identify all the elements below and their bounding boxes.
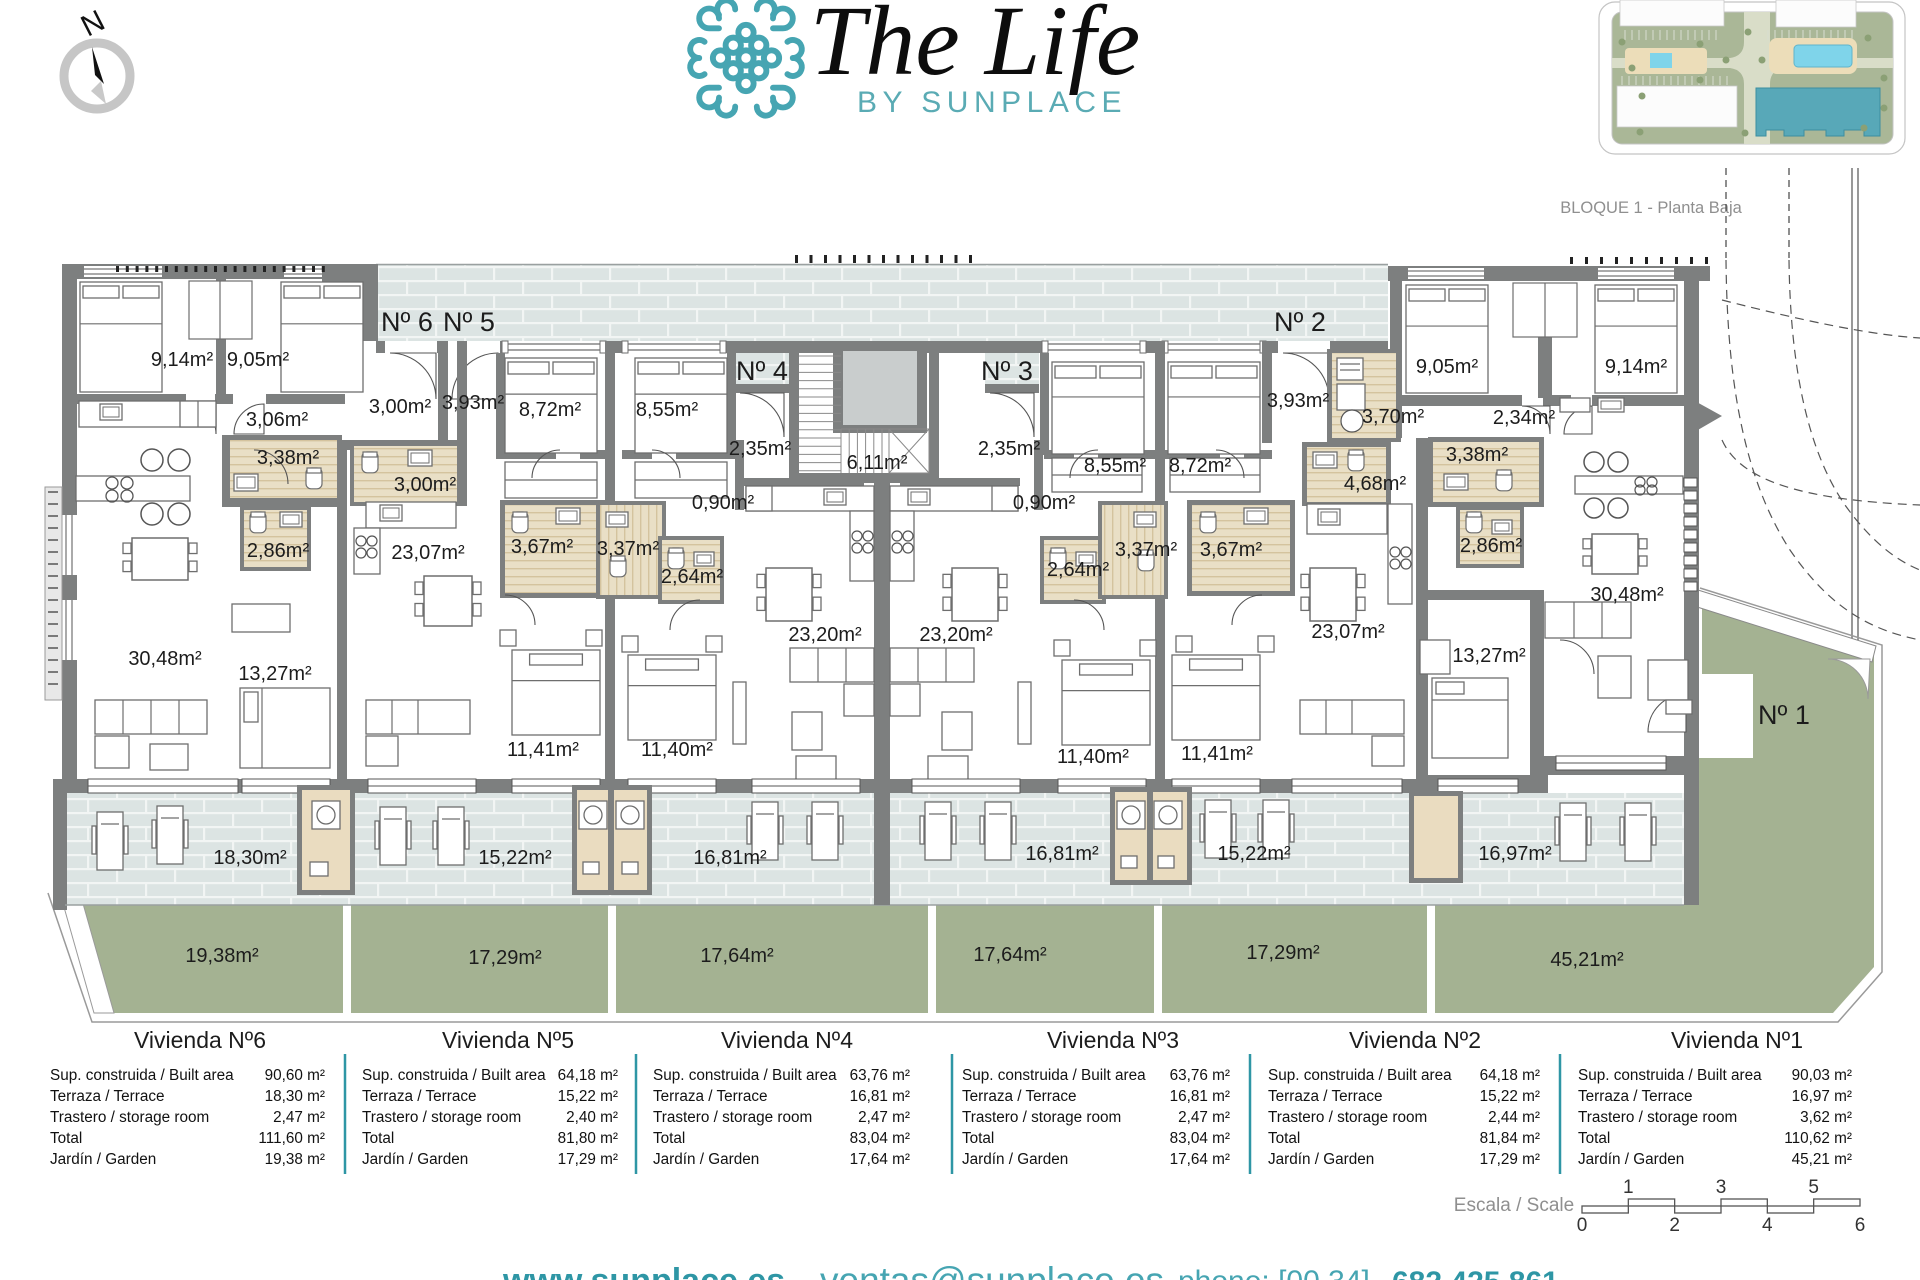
svg-text:Terraza / Terrace: Terraza / Terrace [962, 1088, 1077, 1105]
svg-text:2,47 m²: 2,47 m² [1178, 1109, 1230, 1126]
svg-text:17,29 m²: 17,29 m² [1480, 1151, 1540, 1168]
svg-text:1: 1 [1623, 1177, 1634, 1198]
svg-text:2: 2 [1669, 1215, 1680, 1236]
svg-text:13,27m²: 13,27m² [238, 663, 312, 685]
svg-text:Nº 1: Nº 1 [1758, 700, 1810, 730]
svg-text:6,11m²: 6,11m² [847, 452, 908, 474]
svg-text:30,48m²: 30,48m² [128, 648, 202, 670]
svg-text:Trastero / storage room: Trastero / storage room [1578, 1109, 1737, 1126]
svg-text:23,20m²: 23,20m² [788, 624, 862, 646]
svg-text:3,37m²: 3,37m² [1115, 539, 1178, 561]
svg-text:15,22m²: 15,22m² [478, 847, 552, 869]
svg-text:111,60 m²: 111,60 m² [258, 1130, 325, 1147]
svg-text:2,35m²: 2,35m² [729, 438, 792, 460]
svg-text:15,22m²: 15,22m² [1217, 843, 1291, 865]
svg-text:Sup. construida / Built area: Sup. construida / Built area [1578, 1067, 1762, 1084]
svg-text:Jardín / Garden: Jardín / Garden [1578, 1151, 1684, 1168]
svg-text:Terraza / Terrace: Terraza / Terrace [653, 1088, 768, 1105]
svg-text:Vivienda Nº5: Vivienda Nº5 [442, 1027, 574, 1053]
svg-text:BY SUNPLACE: BY SUNPLACE [857, 86, 1127, 119]
svg-text:4: 4 [1762, 1215, 1773, 1236]
svg-text:8,55m²: 8,55m² [1084, 455, 1147, 477]
svg-text:3,67m²: 3,67m² [1200, 539, 1263, 561]
svg-text:682 425 861: 682 425 861 [1392, 1266, 1559, 1280]
svg-text:BLOQUE 1 - Planta Baja: BLOQUE 1 - Planta Baja [1560, 199, 1742, 217]
svg-text:23,07m²: 23,07m² [1311, 621, 1385, 643]
svg-text:18,30 m²: 18,30 m² [265, 1088, 325, 1105]
svg-text:Sup. construida / Built area: Sup. construida / Built area [1268, 1067, 1452, 1084]
svg-text:Trastero / storage room: Trastero / storage room [362, 1109, 521, 1126]
svg-text:3,62 m²: 3,62 m² [1800, 1109, 1852, 1126]
svg-text:The Life: The Life [810, 0, 1141, 96]
svg-text:8,72m²: 8,72m² [519, 399, 582, 421]
svg-text:ventas@sunplace.es: ventas@sunplace.es [820, 1260, 1164, 1280]
svg-text:16,97m²: 16,97m² [1478, 843, 1552, 865]
svg-text:Vivienda Nº4: Vivienda Nº4 [721, 1027, 853, 1053]
svg-text:Total: Total [653, 1130, 685, 1147]
svg-text:0,90m²: 0,90m² [1013, 492, 1076, 514]
svg-text:Nº 4: Nº 4 [736, 356, 788, 386]
svg-text:Nº 6: Nº 6 [381, 307, 433, 337]
svg-text:17,29 m²: 17,29 m² [558, 1151, 618, 1168]
svg-text:17,64 m²: 17,64 m² [850, 1151, 910, 1168]
svg-text:45,21m²: 45,21m² [1550, 949, 1624, 971]
svg-text:23,07m²: 23,07m² [391, 542, 465, 564]
svg-text:2,44 m²: 2,44 m² [1488, 1109, 1540, 1126]
svg-text:90,60 m²: 90,60 m² [265, 1067, 325, 1084]
svg-text:16,81m²: 16,81m² [693, 847, 767, 869]
svg-text:3,38m²: 3,38m² [257, 447, 320, 469]
svg-text:3,00m²: 3,00m² [394, 474, 457, 496]
svg-text:9,05m²: 9,05m² [227, 349, 290, 371]
svg-text:17,64m²: 17,64m² [700, 945, 774, 967]
svg-text:11,40m²: 11,40m² [1057, 746, 1129, 768]
svg-text:63,76 m²: 63,76 m² [1170, 1067, 1230, 1084]
svg-text:Vivienda Nº2: Vivienda Nº2 [1349, 1027, 1481, 1053]
svg-text:16,97 m²: 16,97 m² [1792, 1088, 1852, 1105]
svg-text:16,81 m²: 16,81 m² [1170, 1088, 1230, 1105]
svg-text:9,14m²: 9,14m² [151, 349, 214, 371]
svg-text:3,67m²: 3,67m² [511, 536, 574, 558]
svg-text:Total: Total [1578, 1130, 1610, 1147]
svg-text:19,38 m²: 19,38 m² [265, 1151, 325, 1168]
svg-text:Jardín / Garden: Jardín / Garden [362, 1151, 468, 1168]
svg-text:30,48m²: 30,48m² [1590, 584, 1664, 606]
svg-text:64,18 m²: 64,18 m² [1480, 1067, 1540, 1084]
svg-text:Terraza / Terrace: Terraza / Terrace [1268, 1088, 1383, 1105]
svg-text:Trastero / storage room: Trastero / storage room [50, 1109, 209, 1126]
svg-text:Nº 5: Nº 5 [443, 307, 495, 337]
svg-text:Sup. construida / Built area: Sup. construida / Built area [362, 1067, 546, 1084]
svg-text:2,34m²: 2,34m² [1493, 407, 1556, 429]
svg-text:63,76 m²: 63,76 m² [850, 1067, 910, 1084]
svg-text:23,20m²: 23,20m² [919, 624, 993, 646]
svg-text:Total: Total [1268, 1130, 1300, 1147]
svg-text:4,68m²: 4,68m² [1344, 473, 1407, 495]
svg-text:Vivienda Nº1: Vivienda Nº1 [1671, 1027, 1803, 1053]
svg-text:19,38m²: 19,38m² [185, 945, 259, 967]
svg-text:Nº 2: Nº 2 [1274, 307, 1326, 337]
svg-text:3,37m²: 3,37m² [597, 538, 660, 560]
svg-text:11,41m²: 11,41m² [507, 739, 579, 761]
svg-text:2,64m²: 2,64m² [661, 566, 724, 588]
svg-text:2,40 m²: 2,40 m² [566, 1109, 618, 1126]
svg-text:2,86m²: 2,86m² [1460, 535, 1523, 557]
svg-text:6: 6 [1855, 1215, 1866, 1236]
svg-text:Trastero / storage room: Trastero / storage room [1268, 1109, 1427, 1126]
svg-text:Terraza / Terrace: Terraza / Terrace [1578, 1088, 1693, 1105]
svg-text:-: - [790, 1261, 801, 1280]
svg-text:9,14m²: 9,14m² [1605, 356, 1668, 378]
svg-text:81,80 m²: 81,80 m² [558, 1130, 618, 1147]
svg-text:Trastero / storage room: Trastero / storage room [653, 1109, 812, 1126]
svg-text:Total: Total [50, 1130, 82, 1147]
svg-text:11,40m²: 11,40m² [641, 739, 713, 761]
svg-text:18,30m²: 18,30m² [213, 847, 287, 869]
svg-text:3,38m²: 3,38m² [1446, 444, 1509, 466]
svg-text:Nº 3: Nº 3 [981, 356, 1033, 386]
svg-text:83,04 m²: 83,04 m² [850, 1130, 910, 1147]
svg-text:16,81 m²: 16,81 m² [850, 1088, 910, 1105]
svg-text:0,90m²: 0,90m² [692, 492, 755, 514]
svg-text:9,05m²: 9,05m² [1416, 356, 1479, 378]
svg-text:8,72m²: 8,72m² [1169, 455, 1232, 477]
svg-text:Jardín / Garden: Jardín / Garden [962, 1151, 1068, 1168]
svg-text:17,64 m²: 17,64 m² [1170, 1151, 1230, 1168]
svg-text:2,64m²: 2,64m² [1047, 559, 1110, 581]
svg-text:2,35m²: 2,35m² [978, 438, 1041, 460]
svg-text:45,21 m²: 45,21 m² [1792, 1151, 1852, 1168]
svg-text:Sup. construida / Built area: Sup. construida / Built area [50, 1067, 234, 1084]
svg-text:3,93m²: 3,93m² [442, 392, 505, 414]
svg-text:Vivienda Nº3: Vivienda Nº3 [1047, 1027, 1179, 1053]
svg-text:81,84 m²: 81,84 m² [1480, 1130, 1540, 1147]
svg-text:Sup. construida / Built area: Sup. construida / Built area [962, 1067, 1146, 1084]
svg-text:11,41m²: 11,41m² [1181, 743, 1253, 765]
svg-text:3,70m²: 3,70m² [1362, 406, 1425, 428]
svg-text:17,29m²: 17,29m² [1246, 942, 1320, 964]
svg-text:Vivienda Nº6: Vivienda Nº6 [134, 1027, 266, 1053]
svg-text:16,81m²: 16,81m² [1025, 843, 1099, 865]
svg-text:Jardín / Garden: Jardín / Garden [50, 1151, 156, 1168]
svg-text:3,93m²: 3,93m² [1267, 390, 1330, 412]
svg-text:Jardín / Garden: Jardín / Garden [653, 1151, 759, 1168]
svg-text:17,64m²: 17,64m² [973, 944, 1047, 966]
svg-text:13,27m²: 13,27m² [1452, 645, 1526, 667]
svg-text:3,00m²: 3,00m² [369, 396, 432, 418]
svg-text:3: 3 [1716, 1177, 1727, 1198]
svg-text:15,22 m²: 15,22 m² [1480, 1088, 1540, 1105]
svg-text:83,04 m²: 83,04 m² [1170, 1130, 1230, 1147]
svg-text:Jardín / Garden: Jardín / Garden [1268, 1151, 1374, 1168]
svg-text:8,55m²: 8,55m² [636, 399, 699, 421]
svg-text:Trastero / storage room: Trastero / storage room [962, 1109, 1121, 1126]
svg-text:0: 0 [1577, 1215, 1588, 1236]
svg-text:2,86m²: 2,86m² [247, 540, 310, 562]
svg-text:5: 5 [1808, 1177, 1819, 1198]
svg-text:Total: Total [362, 1130, 394, 1147]
svg-text:110,62 m²: 110,62 m² [1784, 1130, 1852, 1147]
svg-text:2,47 m²: 2,47 m² [858, 1109, 910, 1126]
svg-text:Terraza / Terrace: Terraza / Terrace [50, 1088, 165, 1105]
svg-text:64,18 m²: 64,18 m² [558, 1067, 618, 1084]
svg-text:Terraza / Terrace: Terraza / Terrace [362, 1088, 477, 1105]
svg-text:3,06m²: 3,06m² [246, 409, 309, 431]
svg-text:90,03 m²: 90,03 m² [1792, 1067, 1852, 1084]
svg-text:15,22 m²: 15,22 m² [558, 1088, 618, 1105]
svg-text:-: - [1150, 1265, 1159, 1280]
svg-text:17,29m²: 17,29m² [468, 947, 542, 969]
svg-text:Total: Total [962, 1130, 994, 1147]
svg-text:www.sunplace.es: www.sunplace.es [502, 1262, 785, 1280]
svg-text:2,47 m²: 2,47 m² [273, 1109, 325, 1126]
svg-text:Sup. construida / Built area: Sup. construida / Built area [653, 1067, 837, 1084]
svg-text:phone: [00 34]: phone: [00 34] [1178, 1265, 1370, 1280]
svg-text:Escala / Scale: Escala / Scale [1454, 1195, 1574, 1216]
